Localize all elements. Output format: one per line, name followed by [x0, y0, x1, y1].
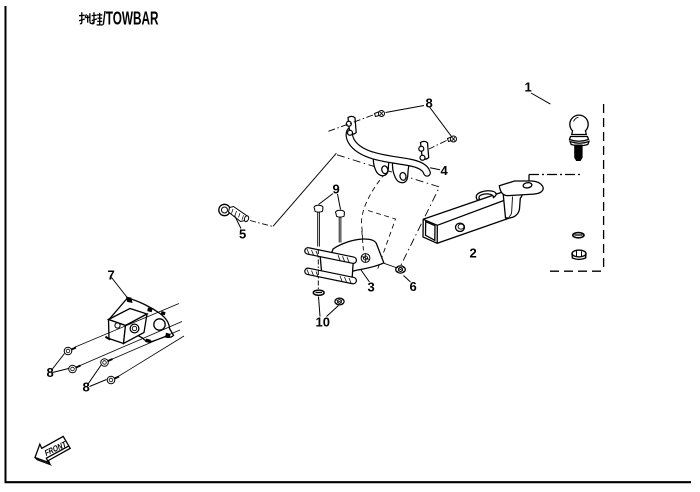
svg-text:5: 5: [239, 226, 246, 241]
svg-text:8: 8: [426, 96, 433, 111]
svg-text:6: 6: [410, 279, 417, 294]
svg-text:9: 9: [333, 182, 340, 197]
svg-text:2: 2: [470, 246, 477, 261]
svg-text:10: 10: [316, 315, 330, 330]
svg-text:3: 3: [368, 280, 375, 295]
svg-text:8: 8: [83, 380, 90, 395]
svg-text:1: 1: [525, 79, 532, 94]
svg-text:4: 4: [441, 163, 449, 178]
svg-text:/TOWBAR: /TOWBAR: [103, 9, 159, 29]
